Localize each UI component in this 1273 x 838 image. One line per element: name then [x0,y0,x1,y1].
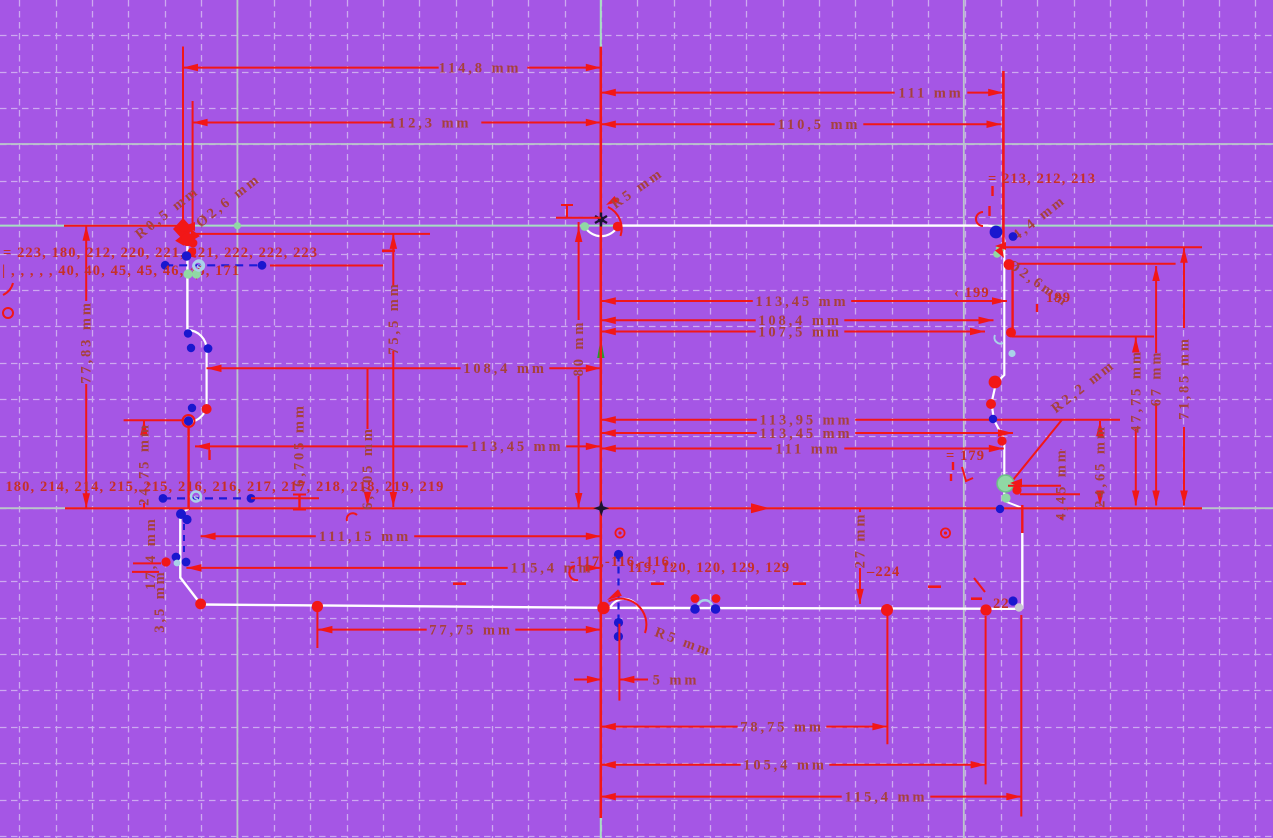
svg-text:107,5 mm: 107,5 mm [758,324,842,340]
svg-text:5 mm: 5 mm [653,672,700,688]
svg-text:199: 199 [1046,290,1071,306]
svg-text:= 223, 180, 212, 220, 221, 221: = 223, 180, 212, 220, 221, 221, 222, 222… [3,245,318,261]
svg-text:= 179: = 179 [946,448,985,464]
svg-text:3,5 mm: 3,5 mm [152,569,168,632]
svg-text:114,8 mm: 114,8 mm [439,60,522,76]
svg-text:119, 120, 120, 129, 129: 119, 120, 120, 129, 129 [628,560,790,576]
svg-text:105,4 mm: 105,4 mm [743,758,827,774]
svg-text:24,65 mm: 24,65 mm [1093,424,1109,508]
svg-text:71,85 mm: 71,85 mm [1177,336,1193,420]
svg-text:s: s [196,259,201,274]
svg-text:, 180, 214, 214, 215, 215, 216: , 180, 214, 214, 215, 215, 216, 216, 217… [0,479,445,495]
svg-text:111 mm: 111 mm [775,441,840,457]
svg-text:111 mm: 111 mm [898,85,963,101]
svg-text:6,705 mm: 6,705 mm [360,426,376,510]
svg-text:111,15 mm: 111,15 mm [319,529,411,545]
svg-text:113,45 mm: 113,45 mm [756,294,849,310]
svg-text:–224: –224 [866,564,900,580]
svg-text:27 mm: 27 mm [853,512,869,569]
svg-text:‹ 199: ‹ 199 [954,285,990,301]
svg-text:113,45 mm: 113,45 mm [471,439,564,455]
svg-text:75,5 mm: 75,5 mm [386,281,402,354]
svg-text:108,4 mm: 108,4 mm [463,361,547,377]
svg-text:22: 22 [993,596,1010,612]
svg-text:80 mm: 80 mm [571,320,587,377]
svg-text:6,705 mm: 6,705 mm [292,403,308,487]
svg-text:77,83 mm: 77,83 mm [79,300,95,384]
svg-text:s: s [193,490,198,505]
svg-text:115,4 mm: 115,4 mm [845,789,928,805]
svg-text:77,75 mm: 77,75 mm [429,622,513,638]
svg-text:78,75 mm: 78,75 mm [740,719,824,735]
svg-text:112,3 mm: 112,3 mm [389,115,472,131]
svg-text:4,45 mm: 4,45 mm [1054,447,1070,520]
svg-text:= 213, 212, 213: = 213, 212, 213 [988,171,1096,187]
svg-text:113,45 mm: 113,45 mm [760,426,853,442]
svg-text:67 mm: 67 mm [1149,350,1165,407]
svg-text:110,5 mm: 110,5 mm [778,117,861,133]
svg-text:47,75 mm: 47,75 mm [1128,349,1144,433]
